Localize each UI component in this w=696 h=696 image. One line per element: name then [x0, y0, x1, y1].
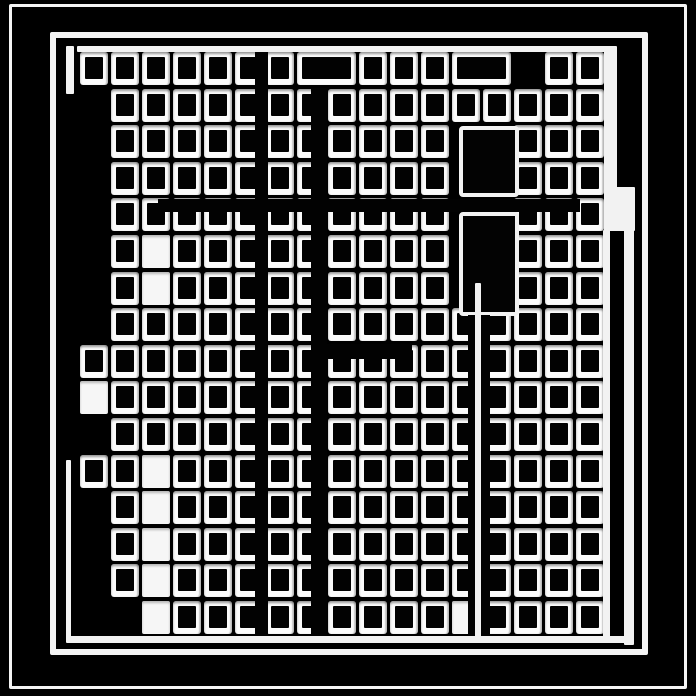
inner-frame: [50, 32, 648, 655]
maze-artwork: [0, 0, 696, 696]
